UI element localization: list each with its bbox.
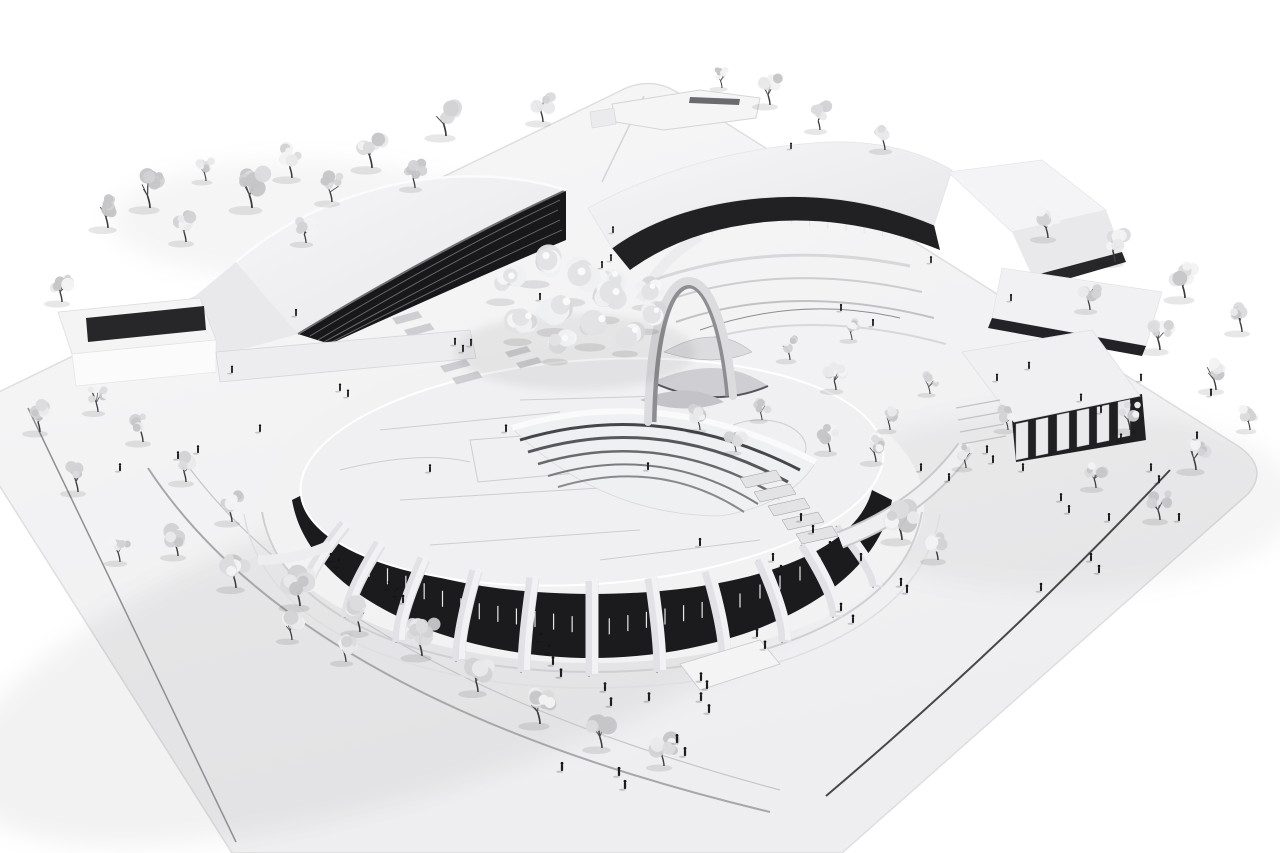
tree-shadow xyxy=(917,393,935,398)
person-body xyxy=(1010,296,1012,301)
tree-foliage xyxy=(600,721,612,733)
tree xyxy=(1224,302,1250,337)
tree-foliage xyxy=(72,471,80,479)
tree-foliage-highlight xyxy=(612,271,618,277)
tree xyxy=(869,125,892,155)
person-body xyxy=(992,457,994,463)
person-body xyxy=(872,321,874,326)
person-head xyxy=(700,672,703,675)
tree-foliage xyxy=(226,566,236,576)
tree-shadow xyxy=(612,351,638,358)
person-head xyxy=(780,565,783,568)
person-body xyxy=(624,782,626,789)
person-body xyxy=(986,447,988,453)
person-head xyxy=(231,366,233,368)
tree-shadow xyxy=(88,226,117,234)
tree-shadow xyxy=(994,429,1015,435)
tree-shadow xyxy=(290,242,313,248)
person-head xyxy=(1060,493,1063,496)
tree-foliage xyxy=(165,531,176,542)
tree-foliage xyxy=(733,435,741,443)
tree-foliage xyxy=(239,177,249,187)
person-head xyxy=(872,319,874,321)
person-head xyxy=(1068,505,1071,508)
person-body xyxy=(1196,434,1198,439)
tree-foliage xyxy=(1051,214,1062,225)
tree-shadow xyxy=(542,359,568,366)
person-body xyxy=(618,769,620,776)
person-head xyxy=(684,747,687,750)
person-head xyxy=(454,338,456,340)
tree-foliage xyxy=(411,170,420,179)
person-body xyxy=(852,617,854,623)
person-body xyxy=(396,590,398,596)
tree-shadow xyxy=(60,491,86,498)
person-head xyxy=(699,538,702,541)
tree-shadow xyxy=(920,559,946,566)
person-head xyxy=(764,640,767,643)
tree-shadow xyxy=(709,87,727,92)
tree-foliage xyxy=(1209,363,1217,371)
tree-foliage xyxy=(549,334,561,346)
tree-foliage xyxy=(1088,462,1096,470)
tree-foliage xyxy=(933,377,938,382)
tree-foliage xyxy=(1147,320,1159,332)
person-head xyxy=(610,697,613,700)
person-head xyxy=(402,595,405,598)
tree-foliage xyxy=(1096,467,1107,478)
person-body xyxy=(561,764,563,771)
person-head xyxy=(462,345,464,347)
tree-foliage-highlight xyxy=(654,308,659,313)
person-body xyxy=(647,464,649,470)
person-head xyxy=(1140,374,1142,376)
tree-trunk xyxy=(818,121,820,130)
tree-trunk xyxy=(1158,339,1160,350)
tree-foliage xyxy=(1035,206,1046,217)
tree-trunk xyxy=(60,292,62,302)
tree-shadow xyxy=(424,134,455,142)
person-head xyxy=(647,462,649,464)
person-head xyxy=(772,553,775,556)
tree-foliage xyxy=(887,511,897,521)
tree-foliage xyxy=(350,595,366,611)
tree xyxy=(88,194,117,234)
tree-trunk xyxy=(1183,286,1185,298)
person-head xyxy=(347,390,349,392)
person-head xyxy=(900,578,903,581)
person-head xyxy=(1178,513,1181,516)
person-body xyxy=(1022,465,1024,471)
tree-shadow xyxy=(330,661,353,667)
person-body xyxy=(756,631,758,637)
tree-foliage xyxy=(758,77,770,89)
person-body xyxy=(948,475,950,481)
person-body xyxy=(1100,408,1102,413)
person-head xyxy=(706,680,709,683)
tree-shadow xyxy=(503,338,532,346)
tree-foliage-highlight xyxy=(598,315,605,322)
person-head xyxy=(676,734,679,737)
tree-foliage-highlight xyxy=(612,288,619,295)
tree-foliage xyxy=(104,194,113,203)
tree-foliage xyxy=(1190,439,1201,450)
tree-foliage xyxy=(178,461,187,470)
person-head xyxy=(992,455,994,457)
tree-foliage xyxy=(539,695,549,705)
person-head xyxy=(920,463,922,465)
tree-shadow xyxy=(458,690,487,698)
tree-shadow xyxy=(192,180,213,186)
person-body xyxy=(601,263,603,268)
tree-shadow xyxy=(839,339,857,344)
tree-foliage xyxy=(53,282,62,291)
person-body xyxy=(800,515,802,521)
tree-foliage xyxy=(408,160,419,171)
tree-shadow xyxy=(168,481,194,488)
tree-trunk xyxy=(1240,322,1242,332)
person-body xyxy=(1120,435,1122,441)
tree xyxy=(525,92,556,127)
person-head xyxy=(560,668,563,671)
tree-shadow xyxy=(1080,487,1103,493)
tree-foliage xyxy=(285,147,293,155)
tree-foliage-highlight xyxy=(578,268,586,276)
person-head xyxy=(259,424,261,426)
person-body xyxy=(648,695,650,701)
person-body xyxy=(505,427,507,432)
tree-foliage xyxy=(907,511,920,524)
person-head xyxy=(812,525,815,528)
person-body xyxy=(539,295,541,300)
tree-foliage xyxy=(255,166,272,183)
tree-shadow xyxy=(22,431,48,438)
tree-shadow xyxy=(272,176,301,184)
person-head xyxy=(561,762,564,765)
tree-foliage xyxy=(335,173,343,181)
tree-foliage xyxy=(36,399,48,411)
person-body xyxy=(231,368,233,373)
person-head xyxy=(295,309,297,311)
person-head xyxy=(840,304,842,306)
person-head xyxy=(1098,565,1101,568)
person-head xyxy=(612,226,614,228)
person-body xyxy=(930,258,932,263)
tree-foliage xyxy=(925,535,938,548)
person-head xyxy=(829,541,832,544)
person-body xyxy=(552,659,554,665)
person-head xyxy=(330,553,333,556)
tree-shadow xyxy=(125,441,151,448)
tree xyxy=(424,99,462,142)
person-body xyxy=(860,555,862,561)
tree-shadow xyxy=(1140,348,1169,356)
person-head xyxy=(996,374,998,376)
person-body xyxy=(829,543,831,549)
person-body xyxy=(699,540,701,546)
tree-shadow xyxy=(880,538,911,546)
tree-foliage xyxy=(286,154,298,166)
tree-shadow xyxy=(314,201,340,208)
tree-shadow xyxy=(350,166,381,174)
person-head xyxy=(338,559,341,562)
tree-foliage xyxy=(1077,287,1088,298)
person-body xyxy=(1210,391,1212,396)
person-head xyxy=(388,581,391,584)
tree-foliage xyxy=(1134,402,1140,408)
tree-foliage xyxy=(1146,498,1157,509)
tree-shadow xyxy=(574,343,605,351)
person-body xyxy=(764,643,766,649)
person-body xyxy=(402,597,404,603)
person-body xyxy=(604,685,606,691)
tree-foliage xyxy=(184,211,196,223)
person-body xyxy=(676,737,678,743)
person-body xyxy=(1090,555,1092,561)
person-head xyxy=(505,424,507,426)
person-body xyxy=(1178,515,1180,521)
tree-foliage xyxy=(61,278,74,291)
person-head xyxy=(1010,294,1012,296)
person-body xyxy=(197,447,199,453)
tree-foliage xyxy=(773,74,783,84)
tree-foliage xyxy=(958,451,967,460)
tree-shadow xyxy=(1236,429,1257,435)
person-head xyxy=(700,692,703,695)
tree-foliage xyxy=(586,720,599,733)
tree-foliage xyxy=(836,364,845,373)
person-head xyxy=(852,615,855,618)
person-body xyxy=(1150,465,1152,471)
tree-foliage xyxy=(1230,308,1238,316)
tree-foliage xyxy=(1004,406,1011,413)
tree-foliage xyxy=(32,409,39,416)
person-body xyxy=(1040,585,1042,591)
person-body xyxy=(610,700,612,706)
tree-foliage-highlight xyxy=(650,284,655,289)
person-figure xyxy=(1136,374,1142,383)
person-head xyxy=(1150,463,1152,465)
tree-foliage xyxy=(1162,497,1172,507)
tree-shadow xyxy=(869,149,892,155)
person-head xyxy=(610,254,612,256)
person-body xyxy=(330,555,332,561)
tree-shadow xyxy=(160,555,186,562)
tree-foliage xyxy=(88,395,95,402)
tree-foliage xyxy=(241,562,250,571)
tree-foliage xyxy=(364,605,376,617)
person-body xyxy=(548,647,550,653)
person-head xyxy=(756,628,759,631)
tree-shadow xyxy=(229,206,263,215)
person-head xyxy=(1158,475,1160,477)
tree-shadow xyxy=(1163,296,1194,304)
tree-foliage xyxy=(811,105,821,115)
person-head xyxy=(1120,433,1122,435)
person-body xyxy=(454,340,456,345)
tree-shadow xyxy=(276,639,299,645)
tree-foliage xyxy=(283,610,298,625)
model-scene xyxy=(0,0,1280,853)
person-head xyxy=(1196,431,1198,433)
person-body xyxy=(612,228,614,233)
tree-shadow xyxy=(1095,260,1124,268)
tree-foliage xyxy=(888,406,894,412)
tree-foliage xyxy=(1239,405,1248,414)
tree-foliage-highlight xyxy=(525,313,532,320)
tree-foliage xyxy=(764,406,772,414)
tree-foliage xyxy=(1164,320,1174,330)
tree-shadow xyxy=(723,451,741,456)
tree-shadow xyxy=(686,429,707,435)
person-head xyxy=(1210,389,1212,391)
person-head xyxy=(540,632,543,635)
tree-foliage xyxy=(443,100,459,116)
tree-shadow xyxy=(749,419,767,424)
tree-trunk xyxy=(444,124,446,136)
tree-trunk xyxy=(768,95,770,105)
person-body xyxy=(780,567,782,573)
person-body xyxy=(560,671,562,677)
person-body xyxy=(610,256,612,261)
person-head xyxy=(396,588,399,591)
person-head xyxy=(1022,463,1024,465)
tree-foliage xyxy=(720,70,727,77)
tree-foliage xyxy=(831,429,839,437)
tree-foliage xyxy=(416,621,428,633)
person-head xyxy=(1040,583,1043,586)
person-body xyxy=(462,347,464,352)
tree-shadow xyxy=(1142,519,1168,526)
tree-foliage-highlight xyxy=(632,327,638,333)
tree-shadow xyxy=(814,451,837,457)
person-body xyxy=(706,683,708,689)
tree-trunk xyxy=(1214,380,1216,390)
tree-shadow xyxy=(776,359,797,365)
person-body xyxy=(259,427,261,432)
tree-shadow xyxy=(1030,237,1056,244)
tree-foliage xyxy=(371,133,385,147)
person-head xyxy=(604,682,607,685)
tree xyxy=(44,275,74,308)
tree-foliage xyxy=(117,540,125,548)
tree-shadow xyxy=(860,461,883,467)
grove-shadow xyxy=(455,314,695,390)
tree-foliage-highlight xyxy=(508,273,515,280)
person-head xyxy=(708,704,711,707)
tree-shadow xyxy=(168,241,194,248)
tree-foliage xyxy=(875,444,883,452)
tree-shadow xyxy=(518,722,549,730)
tree-shadow xyxy=(876,429,897,435)
tree-foliage xyxy=(1182,261,1191,270)
tree-foliage xyxy=(341,636,352,647)
tree-shadow xyxy=(1176,468,1205,476)
person-body xyxy=(338,561,340,567)
person-body xyxy=(840,605,842,611)
tree-foliage xyxy=(472,660,488,676)
person-body xyxy=(1028,364,1030,369)
person-body xyxy=(1098,567,1100,573)
architectural-model-photo xyxy=(0,0,1280,853)
person-head xyxy=(119,463,121,465)
person-body xyxy=(772,555,774,561)
person-head xyxy=(948,473,950,475)
tree-shadow xyxy=(104,561,127,567)
tree-foliage xyxy=(320,177,329,186)
person-body xyxy=(119,465,121,471)
person-head xyxy=(1080,393,1082,395)
person-head xyxy=(548,644,551,647)
tree-shadow xyxy=(128,206,159,214)
tree-shadow xyxy=(486,298,515,306)
tree-foliage xyxy=(790,338,796,344)
tree-foliage xyxy=(1198,448,1206,456)
person-body xyxy=(1108,515,1110,521)
tree-shadow xyxy=(525,121,551,128)
tree-shadow xyxy=(1112,429,1138,436)
tree-foliage xyxy=(177,215,185,223)
person-body xyxy=(700,675,702,681)
tree-foliage xyxy=(1124,402,1131,409)
tree-foliage xyxy=(849,322,856,329)
tree-foliage xyxy=(924,373,933,382)
person-body xyxy=(388,583,390,589)
tree-shadow xyxy=(214,521,240,528)
person-head xyxy=(790,143,792,145)
person-body xyxy=(295,311,297,316)
person-head xyxy=(539,293,541,295)
person-body xyxy=(429,466,431,472)
tree-shadow xyxy=(399,187,422,193)
tree-foliage xyxy=(1111,239,1124,252)
tree-foliage xyxy=(1164,330,1171,337)
tree-shadow xyxy=(1074,309,1097,315)
person-body xyxy=(470,341,472,346)
tree-foliage xyxy=(715,75,720,80)
tree-foliage xyxy=(756,406,763,413)
person-head xyxy=(840,603,843,606)
tree-foliage-highlight xyxy=(542,252,549,259)
person-head xyxy=(552,656,555,659)
tree-trunk xyxy=(721,81,722,88)
tree-trunk xyxy=(541,112,543,122)
tree-shadow xyxy=(820,389,843,395)
person-head xyxy=(429,464,431,466)
person-head xyxy=(986,445,988,447)
person-body xyxy=(1080,396,1082,401)
person-head xyxy=(648,692,651,695)
person-body xyxy=(339,386,341,391)
person-head xyxy=(1090,553,1093,556)
tree-shadow xyxy=(582,746,611,754)
tree-foliage xyxy=(1164,490,1171,497)
person-head xyxy=(339,384,341,386)
tree-foliage xyxy=(1132,411,1139,418)
person-body xyxy=(906,587,908,593)
tree-foliage xyxy=(225,497,238,510)
person-body xyxy=(177,453,179,459)
tree-foliage xyxy=(580,310,605,335)
tree-foliage xyxy=(693,407,703,417)
person-body xyxy=(1140,376,1142,381)
tree-foliage xyxy=(819,433,831,445)
tree-foliage xyxy=(133,424,141,432)
tree-foliage xyxy=(724,431,735,442)
tree-shadow xyxy=(1224,331,1250,338)
tree-foliage xyxy=(289,582,303,596)
person-head xyxy=(860,553,863,556)
